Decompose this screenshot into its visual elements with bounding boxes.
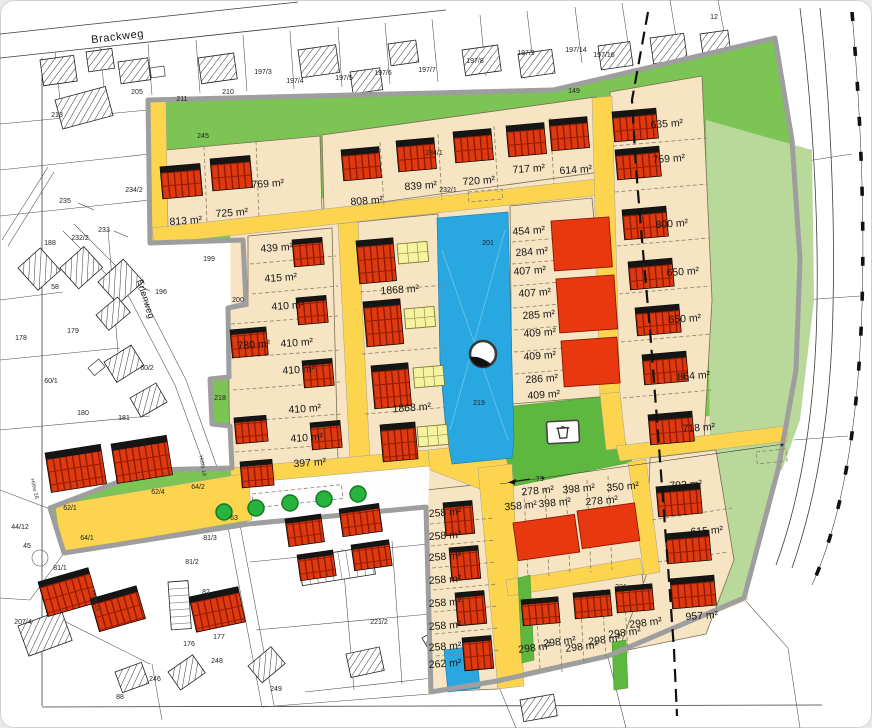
area-label: 800 m² (655, 217, 689, 231)
parcel-label: 232/1 (439, 187, 457, 194)
planned-building (561, 337, 620, 387)
area-label: 410 m² (282, 363, 316, 377)
area-label: 759 m² (652, 152, 686, 166)
planned-building (513, 514, 580, 560)
garage-block (404, 306, 436, 329)
building-house (506, 123, 547, 157)
building-house (356, 238, 397, 284)
parcel-label: 197/6 (374, 70, 392, 77)
garage-block (413, 365, 445, 388)
area-label: 258 m² (428, 596, 462, 610)
building-house (189, 587, 245, 633)
parcel-label: 81/2 (185, 559, 199, 566)
building-house (285, 514, 325, 547)
building-house (111, 435, 173, 483)
area-label: 262 m² (428, 657, 462, 671)
parcel-label: 221/2 (370, 619, 388, 626)
parcel-label: 232/2 (71, 235, 89, 242)
parcel-label: 200 (232, 297, 244, 304)
parcel-label: 179 (67, 328, 79, 335)
parcel-label: 60/2 (140, 365, 154, 372)
parcel-label: 63 (230, 515, 238, 522)
parcel-label: 149 (568, 88, 580, 95)
area-label: 813 m² (169, 214, 203, 228)
parcel-label: 197/3 (254, 69, 272, 76)
building-house (160, 164, 203, 199)
parcel-label: 197/5 (335, 75, 353, 82)
tree-icon (248, 500, 264, 516)
building-house (341, 147, 382, 181)
area-label: 615 m² (690, 524, 724, 538)
building-house (297, 550, 336, 581)
building-house (573, 590, 612, 619)
area-label: 258 m² (428, 506, 462, 520)
building-house (521, 597, 560, 626)
area-label: 650 m² (668, 312, 702, 326)
area-label: 439 m² (260, 241, 294, 255)
parcel-label: 218 (214, 395, 226, 402)
parcel-label: 62/4 (151, 489, 165, 496)
parcel-label: 213 (51, 112, 63, 119)
area-label: 284 m² (515, 245, 549, 259)
parcel-label: 234/2 (125, 187, 143, 194)
parcel-label: 12 (710, 14, 718, 21)
area-label: 258 m² (428, 640, 462, 654)
area-label: 725 m² (215, 206, 249, 220)
parcel-label: 233 (98, 227, 110, 234)
roundabout-outline (32, 550, 48, 566)
parcel-label: 197/16 (593, 52, 615, 59)
area-label: 410 m² (280, 336, 314, 350)
area-label: 410 m² (288, 402, 322, 416)
parcel-label: 201 (482, 240, 494, 247)
area-label: 258 m² (428, 619, 462, 633)
parcel-label: 64/2 (191, 484, 205, 491)
parcel-label: 81/1 (53, 565, 67, 572)
area-label: 718 m² (682, 421, 716, 435)
area-label: 410 m² (290, 431, 324, 445)
area-label: 635 m² (650, 117, 684, 131)
parcel-label: 205 (131, 89, 143, 96)
parcel-label: 176 (183, 641, 195, 648)
parcel-label: 58 (51, 284, 59, 291)
building-house (38, 568, 98, 617)
area-label: 409 m² (523, 349, 557, 363)
parcel-label: 45 (23, 543, 31, 550)
building-house (462, 635, 494, 670)
building-house (240, 459, 274, 488)
dashed-tick-line (812, 12, 863, 585)
pond-symbol-icon (470, 341, 496, 367)
parcel-label: 219 (473, 400, 485, 407)
parcel-label: 60/1 (44, 378, 58, 385)
area-label: 864 m² (677, 369, 711, 383)
area-label: 410 m² (271, 299, 305, 313)
length-label: 73 (536, 476, 544, 484)
parcel-label: 188 (44, 240, 56, 247)
area-label: 769 m² (251, 177, 285, 191)
area-label: 285 m² (522, 308, 556, 322)
building-house (453, 129, 494, 163)
building-house (363, 299, 404, 347)
area-label: 409 m² (527, 388, 561, 402)
parcel-label: 44/12 (11, 524, 29, 531)
parcel-label: 234/1 (425, 150, 443, 157)
parcel-label: 245 (197, 133, 209, 140)
parcel-label: 197/9 (517, 50, 535, 57)
area-label: 720 m² (462, 174, 496, 188)
parcel-label: 197/4 (286, 78, 304, 85)
tree-icon (350, 486, 366, 502)
parcel-label: 235 (59, 198, 71, 205)
parcel-label: 196 (155, 289, 167, 296)
area-label: 258 m² (428, 550, 462, 564)
parcel-label: 62/1 (63, 505, 77, 512)
planned-building (556, 275, 618, 333)
parcel-label: 82 (202, 589, 210, 596)
parcel-label: 199 (203, 256, 215, 263)
parcel-label: 249 (270, 686, 282, 693)
area-label: 808 m² (350, 194, 384, 208)
planned-building (577, 503, 640, 549)
area-label: 415 m² (264, 271, 298, 285)
area-label: 258 m² (428, 573, 462, 587)
height-label: Höhe 16 (29, 478, 40, 500)
area-label: 614 m² (559, 163, 593, 177)
parcel-label: 197/7 (418, 67, 436, 74)
garage-block (397, 241, 429, 264)
parcel-label: 178 (15, 335, 27, 342)
building-house (670, 575, 716, 609)
parcel-label: 81/3 (203, 535, 217, 542)
area-label: 839 m² (404, 179, 438, 193)
parcel-label: 181 (118, 415, 130, 422)
parcel-label: 207/4 (14, 619, 32, 626)
parcel-label: 64/1 (80, 535, 94, 542)
planned-building (551, 217, 612, 271)
parcel-label: 177 (213, 634, 225, 641)
building-house (234, 415, 268, 444)
parcel-label: 197/14 (565, 47, 587, 54)
building-house (210, 156, 253, 191)
parcel-label: 246 (149, 676, 161, 683)
tree-icon (282, 495, 298, 511)
area-label: 717 m² (512, 162, 546, 176)
area-label: 407 m² (518, 286, 552, 300)
building-house (45, 444, 107, 492)
building-house (351, 540, 392, 571)
area-label: 409 m² (523, 326, 557, 340)
garage-block (417, 424, 449, 447)
site-plan-map: Brackweg Erlenweg 813 m² 725 m² 769 m² 8… (0, 0, 872, 728)
area-label: 397 m² (293, 456, 327, 470)
area-label: 454 m² (512, 224, 546, 238)
building-house (380, 422, 418, 462)
building-house (549, 117, 590, 151)
building-house (292, 237, 324, 267)
area-label: 793 m² (669, 478, 703, 492)
area-label: 780 m² (237, 338, 271, 352)
parcel-label: 221 (615, 584, 627, 591)
area-label: 407 m² (513, 264, 547, 278)
parcel-label: 210 (222, 89, 234, 96)
area-label: 258 m² (428, 529, 462, 543)
area-label: 957 m² (685, 609, 719, 623)
building-house (339, 503, 383, 536)
street-name-erlenweg: Erlenweg (135, 278, 156, 320)
parcel-label: 88 (116, 694, 124, 701)
parcel-label: 197/8 (466, 58, 484, 65)
area-label: 286 m² (525, 372, 559, 386)
parcel-label: 211 (176, 96, 187, 103)
parcel-label: 180 (77, 410, 89, 417)
plan-sheet: Brackweg Erlenweg 813 m² 725 m² 769 m² 8… (0, 0, 872, 728)
area-label: 650 m² (666, 265, 700, 279)
parcel-label: 248 (211, 658, 223, 665)
waste-container-icon (546, 420, 579, 444)
garage-row (168, 581, 191, 630)
tree-icon (316, 491, 332, 507)
